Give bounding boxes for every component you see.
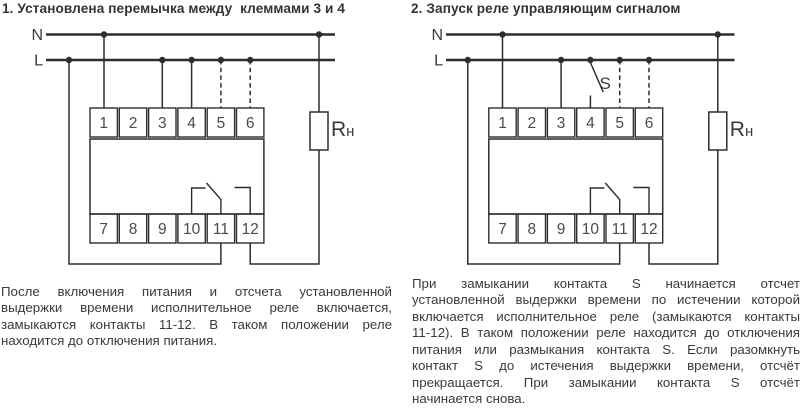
- diagram2-schematic: N L S Rн 1 2 3 4 5 6 7 8 9 10 11 12: [400, 0, 800, 272]
- description-line: установленной выдержки времени по истече…: [412, 292, 800, 308]
- svg-text:2: 2: [129, 115, 138, 132]
- n-label: N: [31, 27, 43, 44]
- svg-text:6: 6: [645, 115, 654, 132]
- svg-text:10: 10: [582, 221, 600, 238]
- description-line: замыкаются контакты 11-12. В таком полож…: [1, 317, 392, 333]
- svg-text:12: 12: [242, 221, 259, 238]
- description-line: При замыкании контакта S начинается отсч…: [412, 276, 800, 292]
- relay-contact: [590, 183, 649, 214]
- svg-text:9: 9: [557, 221, 566, 238]
- terminal-row-top: [90, 108, 264, 137]
- load-resistor: [310, 112, 328, 150]
- diagram1-description: После включения питания и отсчета устано…: [1, 284, 392, 350]
- svg-text:11: 11: [612, 221, 628, 238]
- terminal-row-top: [489, 108, 663, 137]
- svg-text:1: 1: [498, 115, 507, 132]
- terminal-feed-wires: [104, 35, 250, 109]
- terminal-numbers-top: 1 2 3 4 5 6: [99, 115, 254, 132]
- load-label: Rн: [331, 118, 354, 141]
- svg-text:8: 8: [129, 221, 138, 238]
- diagram1-schematic: N L Rн 1 2 3 4 5 6 7 8 9 10 11 12: [0, 0, 400, 272]
- svg-text:7: 7: [498, 221, 507, 238]
- svg-text:5: 5: [615, 115, 624, 132]
- description-line: После включения питания и отсчета устано…: [1, 284, 392, 300]
- svg-text:3: 3: [158, 115, 167, 132]
- svg-text:12: 12: [640, 221, 657, 238]
- description-line: прекращается. При замыкании контакта S о…: [412, 375, 800, 391]
- terminal-row-bottom: [90, 214, 264, 243]
- svg-text:1: 1: [99, 115, 108, 132]
- relay-body: [489, 139, 663, 214]
- svg-text:10: 10: [183, 221, 201, 238]
- svg-text:2: 2: [527, 115, 536, 132]
- wiring-diagrams-page: 1. Установлена перемычка между клеммами …: [0, 0, 800, 409]
- svg-text:4: 4: [187, 115, 196, 132]
- description-line: начинается снова.: [412, 391, 800, 407]
- description-line: включается исполнительное реле (замыкают…: [412, 309, 800, 325]
- diagram2-description: При замыкании контакта S начинается отсч…: [412, 276, 800, 408]
- load-resistor: [709, 112, 727, 150]
- svg-text:11: 11: [213, 221, 229, 238]
- terminal-row-bottom: [489, 214, 663, 243]
- svg-text:9: 9: [158, 221, 167, 238]
- svg-text:7: 7: [99, 221, 108, 238]
- svg-text:8: 8: [527, 221, 536, 238]
- l-label: L: [34, 52, 43, 69]
- switch-label: S: [600, 74, 611, 93]
- svg-text:3: 3: [557, 115, 566, 132]
- terminal-numbers-top: 1 2 3 4 5 6: [498, 115, 653, 132]
- description-line: контакт S до истечения выдержки времени,…: [412, 358, 800, 374]
- l-label: L: [434, 52, 443, 69]
- terminal-feed-wires: [503, 35, 650, 109]
- svg-text:6: 6: [246, 115, 255, 132]
- relay-contact: [192, 183, 251, 214]
- relay-body: [90, 139, 264, 214]
- n-label: N: [431, 27, 443, 44]
- description-line: 11-12). В таком положении реле находится…: [412, 325, 800, 341]
- description-line: питания или размыкания контакта S. Если …: [412, 342, 800, 358]
- svg-text:4: 4: [586, 115, 595, 132]
- description-line: находится до отключения питания.: [1, 333, 392, 349]
- svg-text:5: 5: [217, 115, 226, 132]
- load-label: Rн: [730, 118, 753, 141]
- description-line: выдержки времени исполнительное реле вкл…: [1, 300, 392, 316]
